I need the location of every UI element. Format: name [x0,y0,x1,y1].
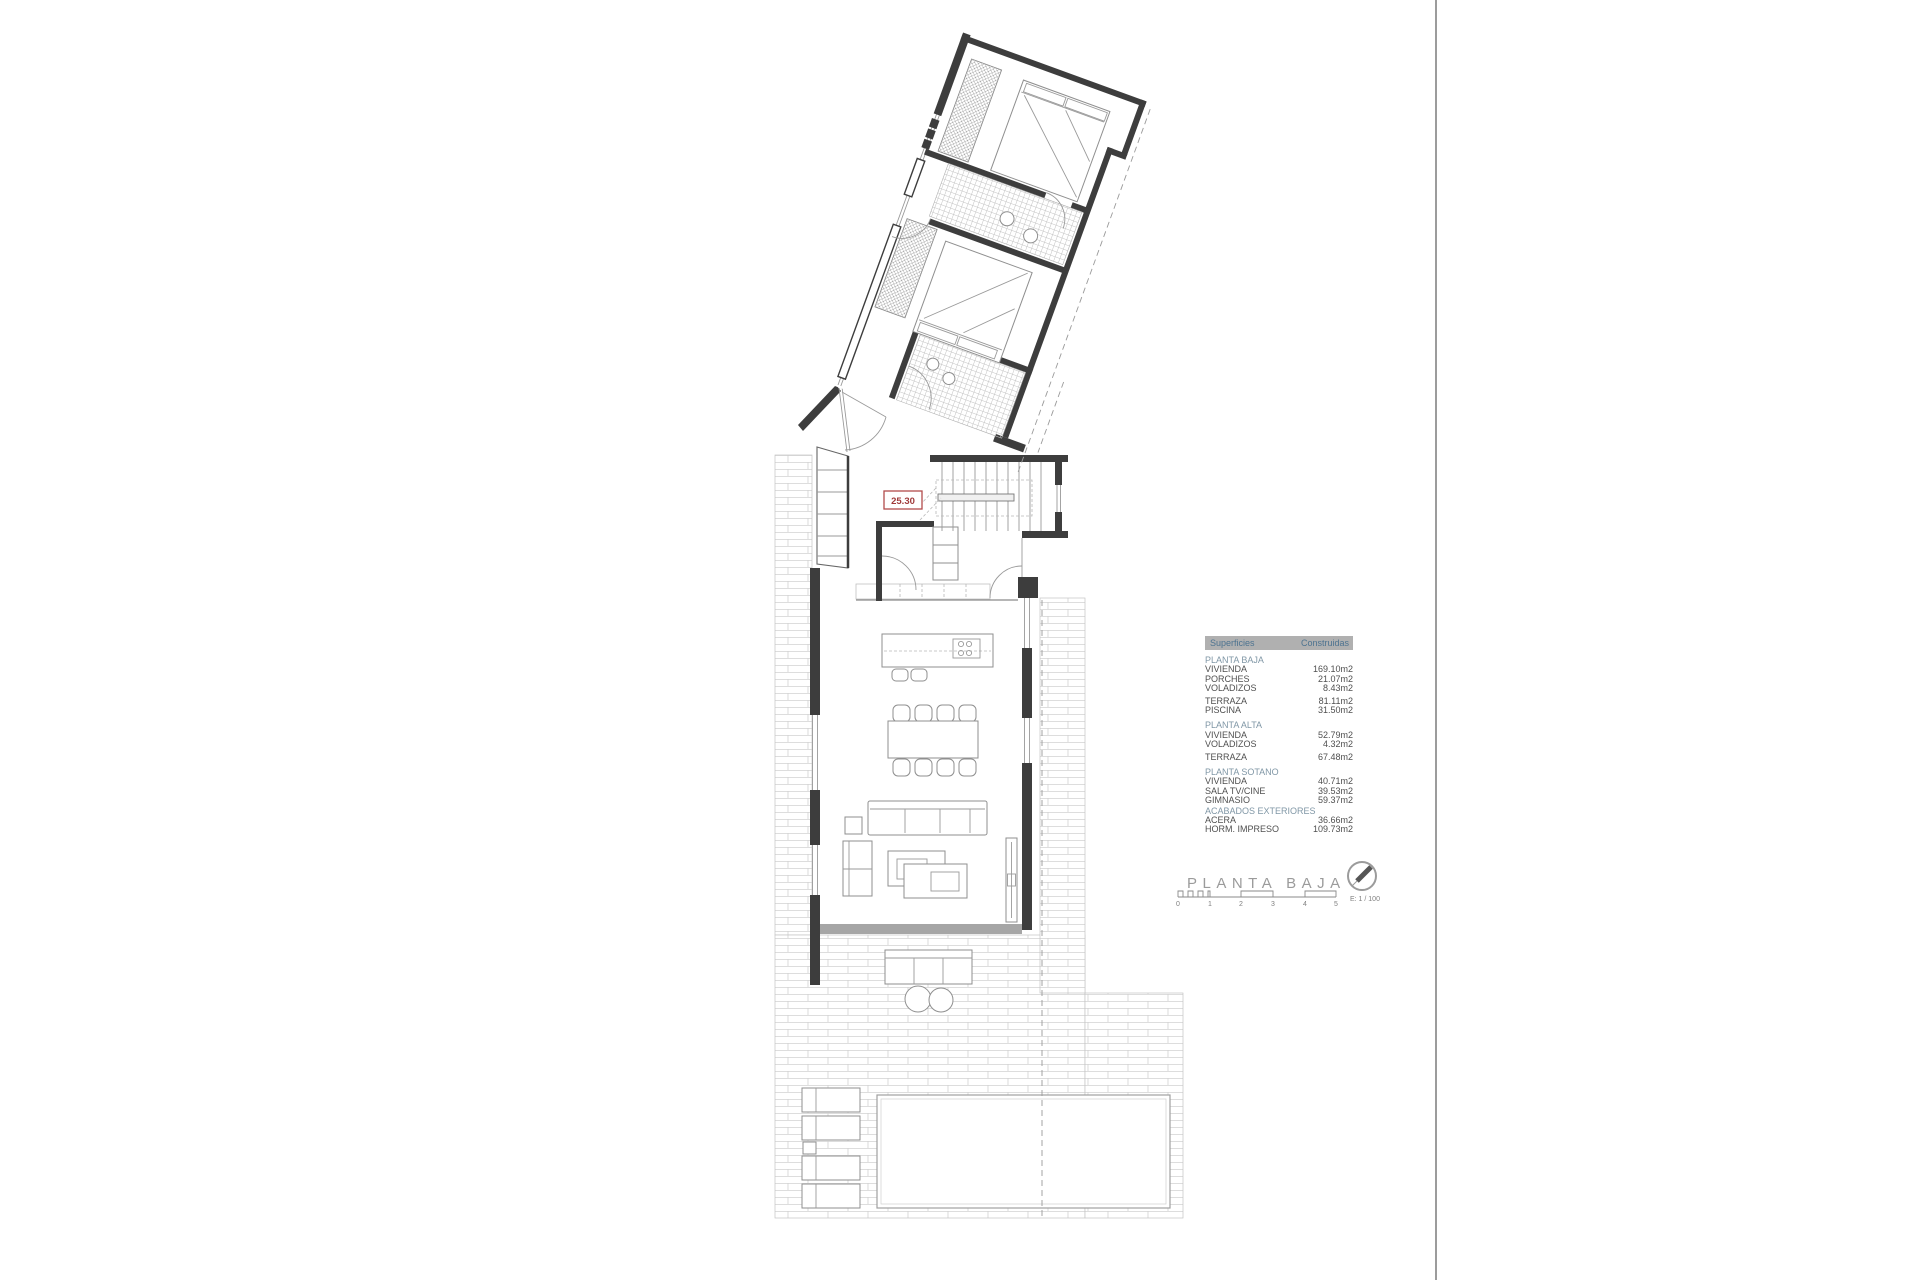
row-value: 59.37m2 [1318,796,1353,805]
planter [817,447,848,568]
svg-text:4: 4 [1303,901,1307,908]
svg-text:2: 2 [1239,901,1243,908]
lounger-side-table [803,1142,816,1154]
row-label: TERRAZA [1205,753,1247,762]
row-label: PISCINA [1205,706,1241,715]
row-label: GIMNASIO [1205,796,1250,805]
areas-table-rows: PLANTA BAJAVIVIENDA169.10m2PORCHES21.07m… [1205,656,1353,834]
cabinet [933,545,958,563]
stair-handrail [938,494,1014,501]
row-label: VOLADIZOS [1205,740,1257,749]
pool [877,1095,1170,1208]
floor-plan-page: 25.30 PLANTA BAJA 0 1 2 3 4 5 E: 1 / 100… [0,0,1920,1280]
row-value: 67.48m2 [1318,753,1353,762]
living-room [810,558,1038,985]
staircase [920,455,1068,538]
row-value: 8.43m2 [1323,684,1353,693]
cabinet [933,563,958,580]
scale-label: E: 1 / 100 [1350,896,1380,903]
areas-table-col2: Construidas [1301,639,1349,648]
svg-text:3: 3 [1271,901,1275,908]
svg-text:5: 5 [1334,901,1338,908]
row-label: HORM. IMPRESO [1205,825,1279,834]
row-value: 31.50m2 [1318,706,1353,715]
row-value: 109.73m2 [1313,825,1353,834]
svg-text:0: 0 [1176,901,1180,908]
table-row: TERRAZA67.48m2 [1205,753,1353,762]
bedroom-wing [828,33,1164,476]
cabinet [933,527,958,545]
dimension-label: 25.30 [884,491,922,509]
scale-bar: 0 1 2 3 4 5 E: 1 / 100 [1176,891,1380,908]
svg-text:25.30: 25.30 [891,496,915,507]
table-row: VOLADIZOS8.43m2 [1205,684,1353,693]
areas-table: Superficies Construidas PLANTA BAJAVIVIE… [1205,636,1353,835]
sliding-door-band [820,924,1022,934]
table-gap [1205,715,1353,719]
areas-table-col1: Superficies [1210,639,1255,648]
tv-bench [1006,838,1017,922]
north-arrow-icon [1348,862,1376,890]
title-block: PLANTA BAJA 0 1 2 3 4 5 E: 1 / 100 [1176,862,1380,908]
table-row: VOLADIZOS4.32m2 [1205,740,1353,749]
row-value: 4.32m2 [1323,740,1353,749]
stool [911,669,927,681]
row-label: VOLADIZOS [1205,684,1257,693]
svg-text:1: 1 [1208,901,1212,908]
floor-plan-canvas: 25.30 PLANTA BAJA 0 1 2 3 4 5 E: 1 / 100 [0,0,1920,1280]
table-row: GIMNASIO59.37m2 [1205,796,1353,805]
stool [892,669,908,681]
plan-title: PLANTA BAJA [1187,875,1346,892]
table-gap [1205,762,1353,766]
table-row: PISCINA31.50m2 [1205,706,1353,715]
areas-table-header: Superficies Construidas [1205,636,1353,650]
page-divider [1435,0,1437,1280]
table-row: HORM. IMPRESO109.73m2 [1205,825,1353,834]
side-table [845,817,862,834]
outdoor-sofa [885,950,972,984]
